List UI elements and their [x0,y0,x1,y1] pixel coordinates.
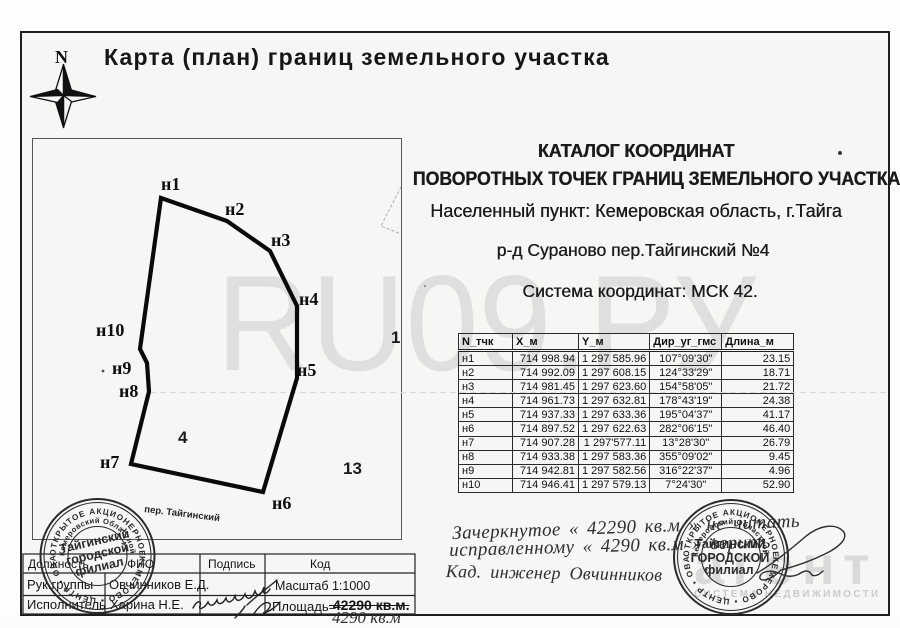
svg-text:N: N [55,47,68,67]
